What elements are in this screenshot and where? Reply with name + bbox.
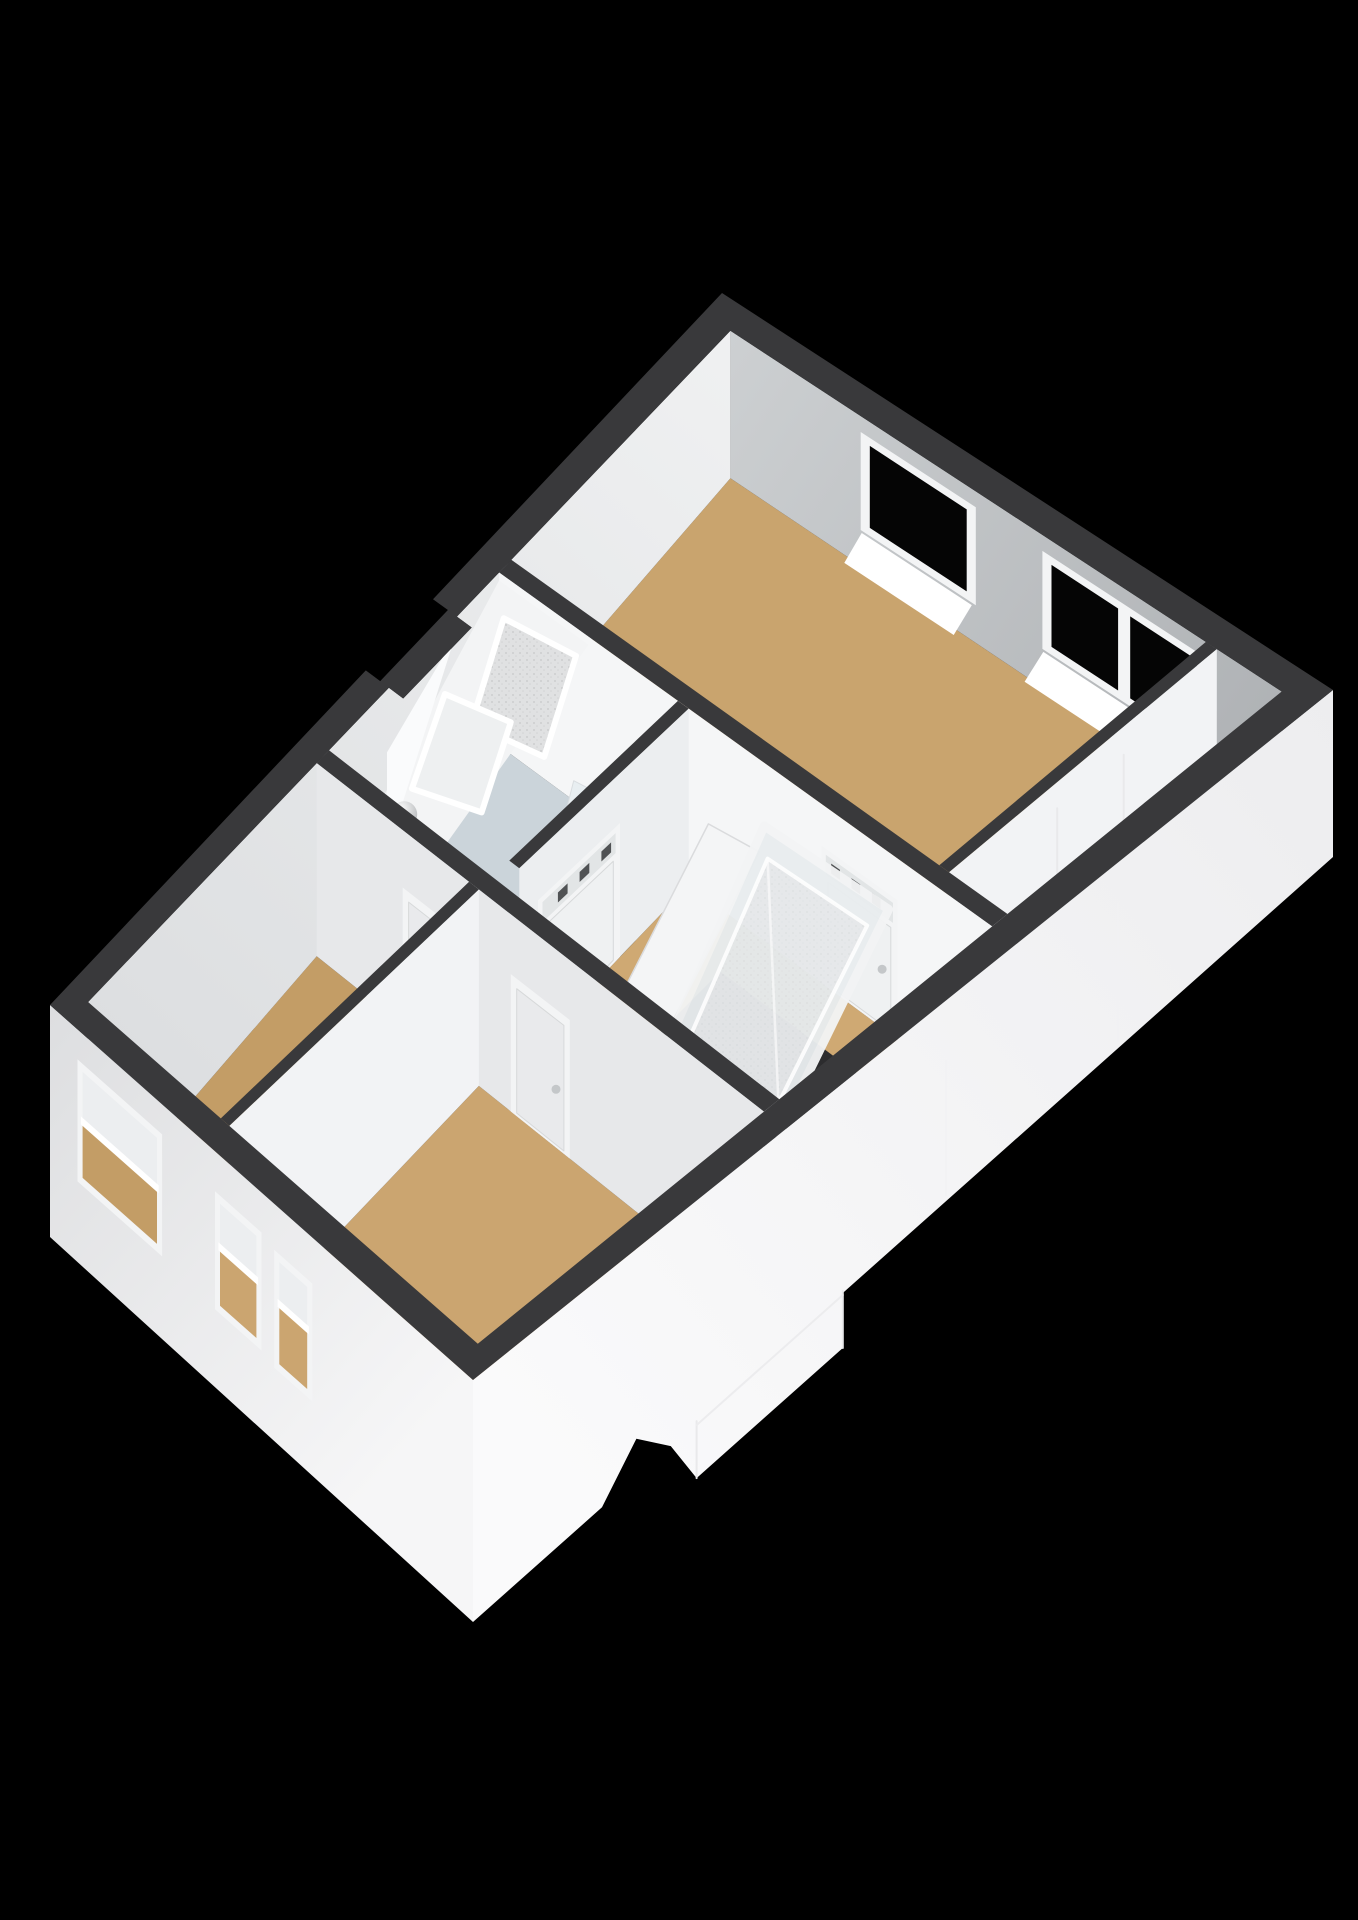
floorplan-3d-render	[0, 0, 1358, 1920]
door-bottom-bedroom-handle-icon	[552, 1085, 561, 1094]
door-master-bedroom-handle-icon	[878, 965, 887, 974]
floorplan-stage	[0, 0, 1358, 1920]
